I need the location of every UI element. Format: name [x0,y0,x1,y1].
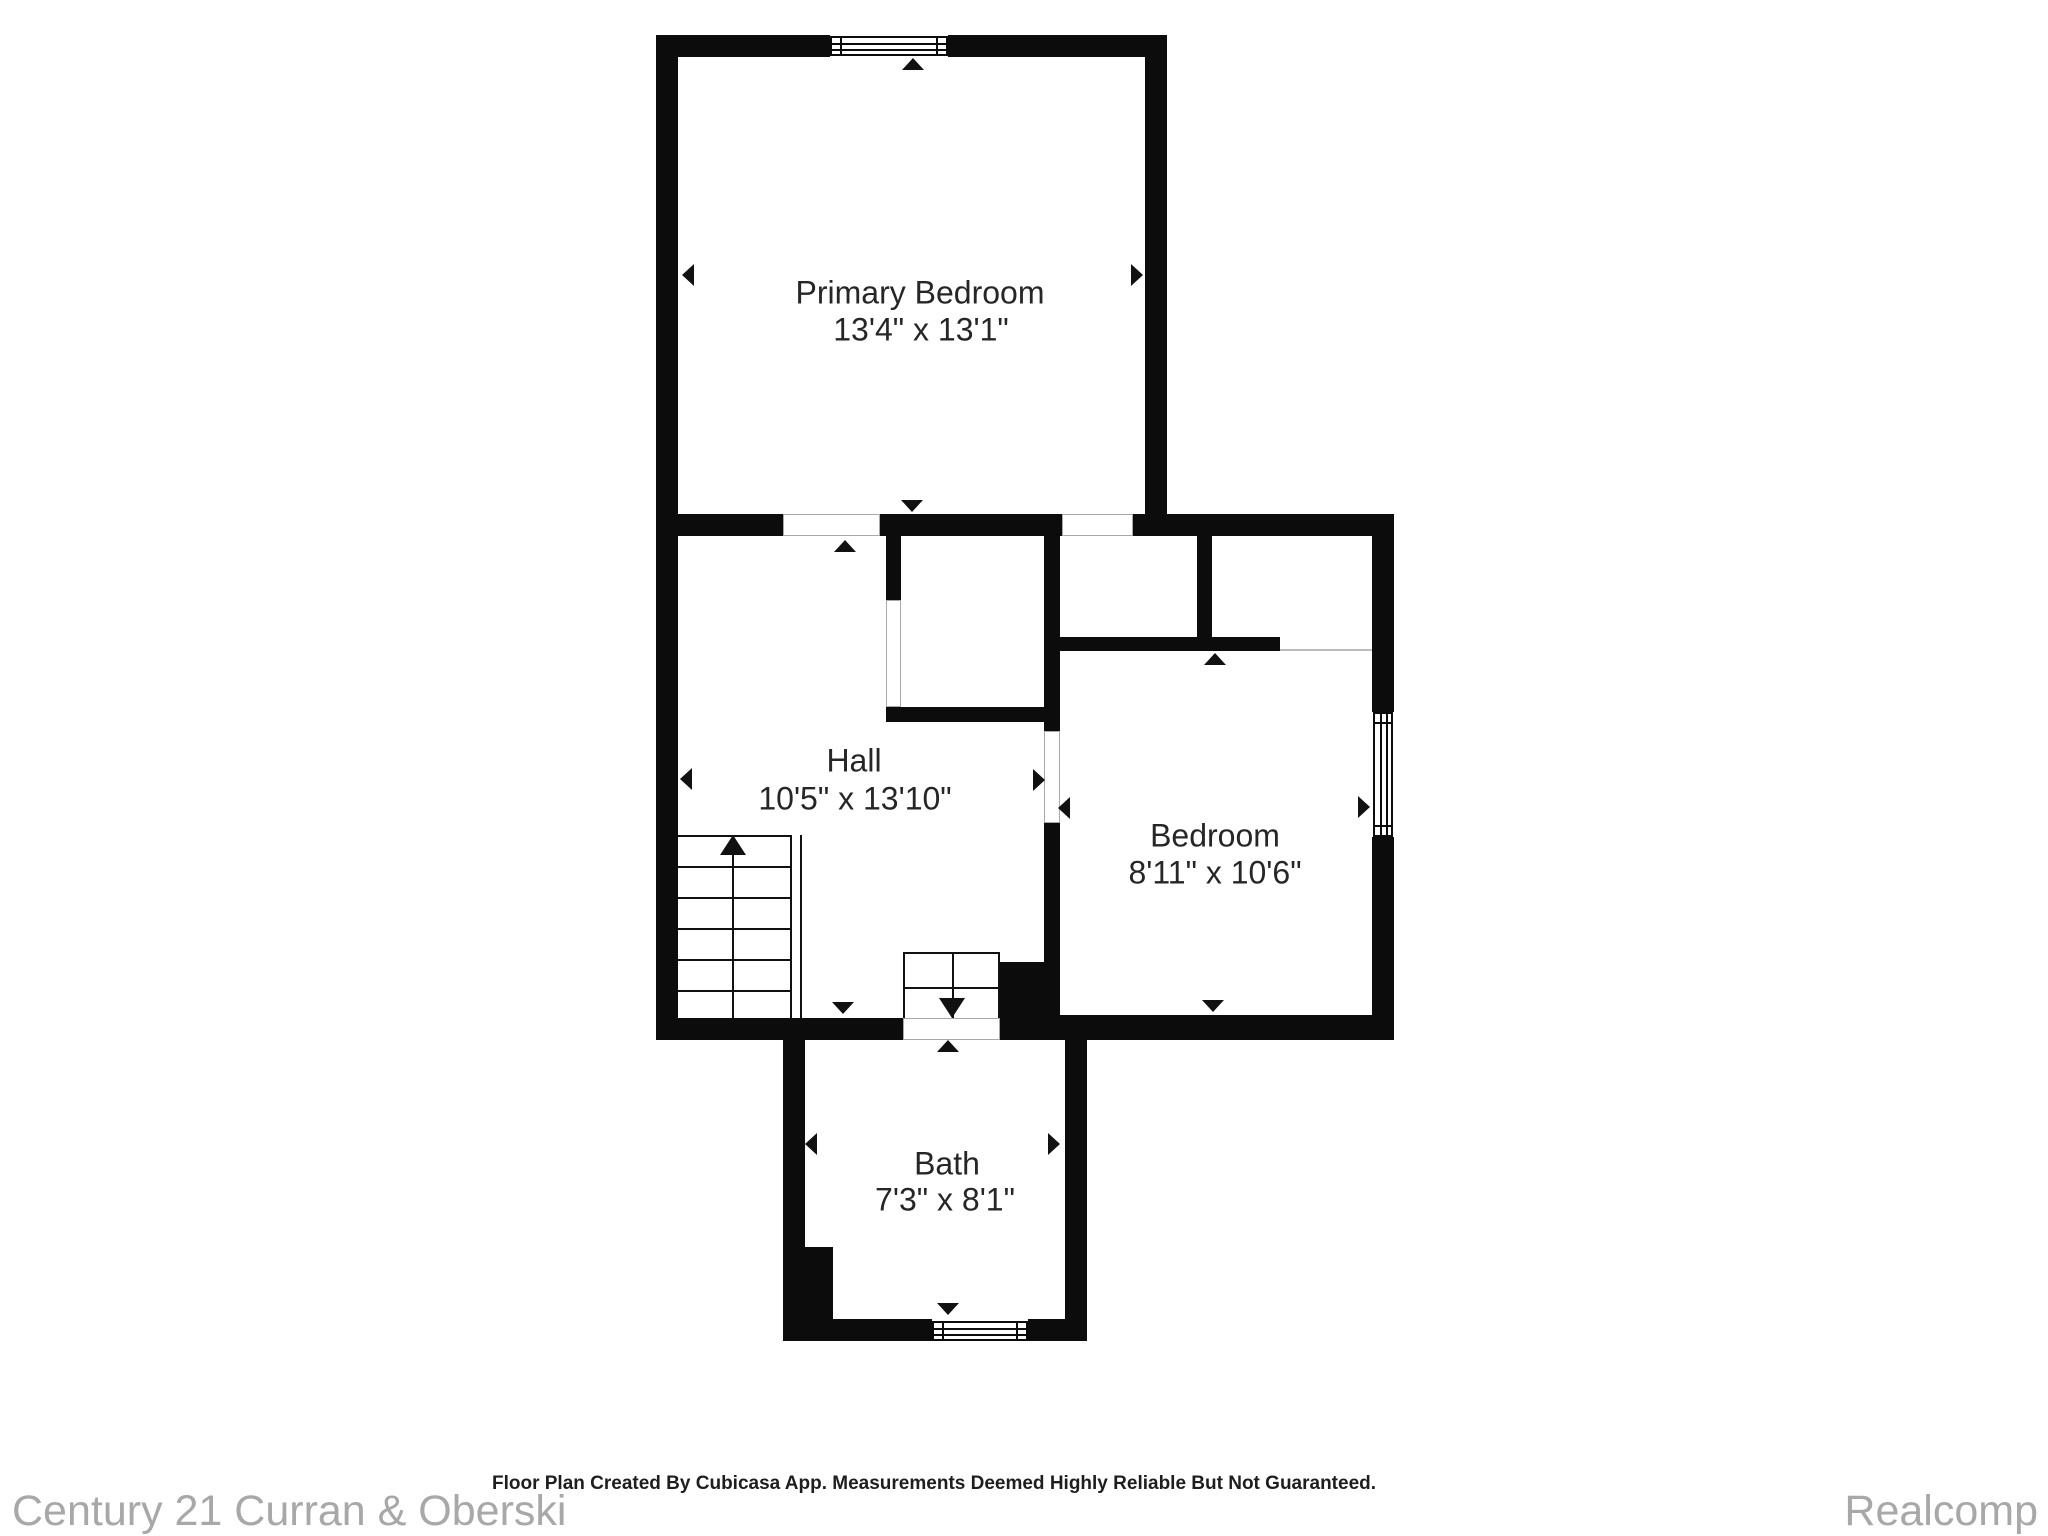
window-glass-line [934,1328,1026,1330]
stair-down-arrow [939,998,965,1018]
wall-closet-bottom [886,707,1060,722]
window-glass-line [1386,714,1388,835]
floor-plan-page: Primary Bedroom 13'4" x 13'1" Hall 10'5"… [0,0,2048,1536]
wall-bath-bottom-left [783,1319,932,1341]
dim-arrow-bath-left [805,1133,817,1155]
stair-tread [678,990,790,992]
wall-hall-bedroom-upper [1044,514,1060,731]
door-opening-hall-primary [783,514,880,536]
window-glass-line [934,1334,1026,1336]
dim-arrow-bedroom-bottom [1202,1000,1224,1012]
footer-disclaimer: Floor Plan Created By Cubicasa App. Meas… [492,1473,1376,1495]
wall-hall-bedroom-lower [1044,823,1060,962]
wall-closet-left [886,536,901,600]
footer-brand-left: Century 21 Curran & Oberski [12,1487,566,1536]
window-frame-post [840,38,842,54]
room-dims-hall: 10'5" x 13'10" [758,781,951,818]
window-glass-line [832,49,946,51]
dim-arrow-primary-right [1131,264,1143,286]
room-dims-primary-bedroom: 13'4" x 13'1" [833,312,1009,349]
wall-exterior-top-right [948,35,1167,57]
dim-arrow-hall-bottom [832,1002,854,1014]
stair-up-arrow [720,835,746,855]
closet-open-boundary [1280,649,1372,651]
dim-arrow-hall-left [680,768,692,790]
dim-arrow-hall-right [1033,769,1045,791]
dim-arrow-primary-bottom [901,500,923,512]
room-name-hall: Hall [826,743,881,780]
wall-bedroom-top [1058,637,1280,651]
dim-arrow-hall-top [834,540,856,552]
window-frame-post [942,1323,944,1339]
door-opening-hall-closet [886,600,901,707]
stair-tread [678,959,790,961]
room-dims-bath: 7'3" x 8'1" [875,1182,1015,1219]
wall-closet-top [880,514,1062,536]
dim-arrow-bath-right [1048,1133,1060,1155]
dim-arrow-bedroom-left [1058,797,1070,819]
window-bedroom [1373,712,1393,837]
stair-tread [905,987,998,989]
window-frame-post [1016,1323,1018,1339]
window-bath [932,1321,1028,1341]
stair-rail [790,835,802,1018]
wall-right-wing-divider [1197,536,1212,637]
window-glass-line [832,43,946,45]
door-opening-hall-bath [903,1018,1000,1040]
window-frame-post [1375,825,1391,827]
dim-arrow-bedroom-top [1204,653,1226,665]
room-name-bath: Bath [914,1146,980,1183]
window-frame-post [936,38,938,54]
footer-brand-right: Realcomp [1844,1487,2038,1536]
wall-primary-bedroom-right [1145,35,1167,536]
stair-tread [678,866,790,868]
room-name-primary-bedroom: Primary Bedroom [796,275,1045,312]
window-glass-line [1380,714,1382,835]
wall-bath-bottom-right [1028,1319,1087,1341]
wall-exterior-left [656,35,678,1040]
dim-arrow-primary-left [682,264,694,286]
wall-corner-block [1000,962,1060,1040]
wall-bath-right [1065,1040,1087,1341]
window-frame-post [1375,722,1391,724]
dim-arrow-bedroom-right [1358,796,1370,818]
wall-hall-bottom [656,1018,903,1040]
stair-direction-line [732,852,734,1018]
wall-bedroom-bottom [1058,1015,1394,1040]
dim-arrow-primary-top [902,58,924,70]
wall-hall-top-left [656,514,783,536]
dim-arrow-bath-bottom [937,1303,959,1315]
wall-right-wing-top [1133,514,1394,536]
staircase-up [678,835,790,1018]
wall-exterior-top-left [656,35,830,57]
wall-exterior-right-upper [1372,514,1394,712]
room-dims-bedroom: 8'11" x 10'6" [1128,855,1301,892]
stair-tread [678,897,790,899]
stair-tread [678,928,790,930]
door-opening-primary-closet [1062,514,1133,536]
room-name-bedroom: Bedroom [1150,818,1280,855]
window-primary-bedroom [830,36,948,56]
dim-arrow-bath-top [937,1040,959,1052]
wall-exterior-right-lower [1372,837,1394,1040]
